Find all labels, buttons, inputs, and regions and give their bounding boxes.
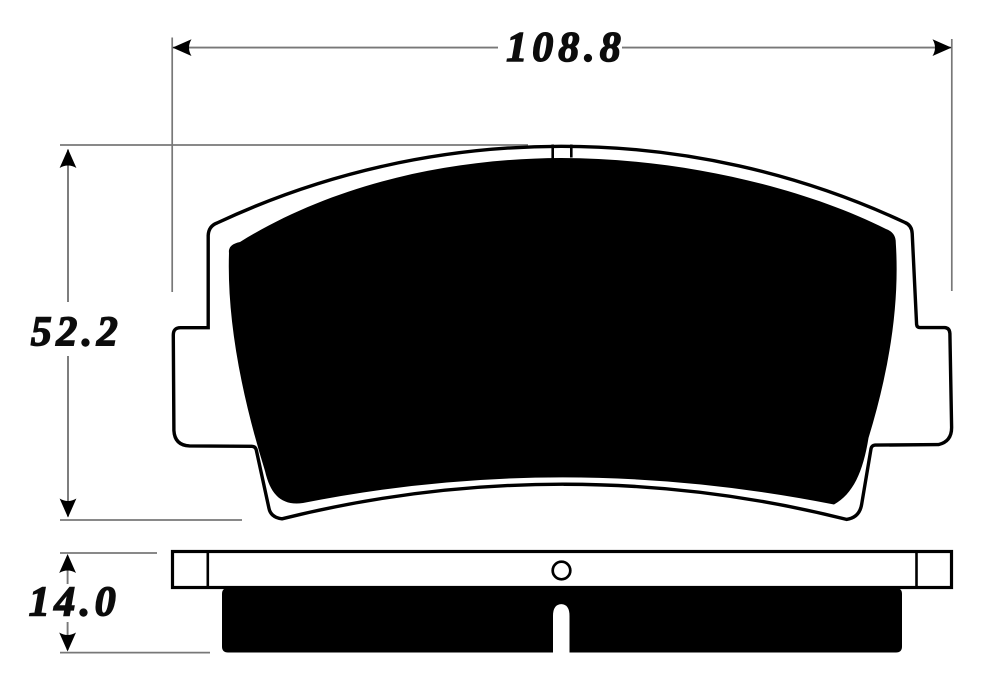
svg-text:52.2: 52.2 [31,310,123,356]
svg-text:108.8: 108.8 [506,25,626,71]
svg-text:14.0: 14.0 [29,580,121,626]
